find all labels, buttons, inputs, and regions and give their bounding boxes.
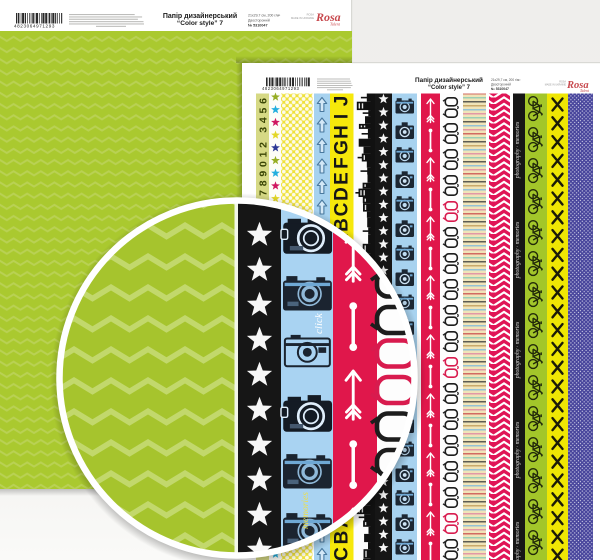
svg-text:D: D bbox=[332, 187, 353, 201]
svg-text:F: F bbox=[332, 157, 353, 169]
svg-text:MADE IN UKRAINE: MADE IN UKRAINE bbox=[291, 16, 314, 20]
svg-text:E: E bbox=[332, 172, 353, 185]
svg-text:Двосторонній: Двосторонній bbox=[491, 83, 511, 87]
svg-text:photography · memories: photography · memories bbox=[515, 321, 521, 379]
svg-text:9: 9 bbox=[257, 171, 269, 177]
svg-text:4823064971293: 4823064971293 bbox=[14, 24, 55, 29]
svg-text:MADE IN UKRAINE: MADE IN UKRAINE bbox=[545, 84, 567, 87]
svg-text:8: 8 bbox=[257, 180, 269, 186]
svg-text:5: 5 bbox=[257, 108, 269, 114]
svg-text:J: J bbox=[332, 96, 353, 107]
svg-text:№ 5310047: № 5310047 bbox=[248, 23, 268, 27]
svg-text:I: I bbox=[332, 114, 353, 119]
svg-text:memories: memories bbox=[301, 492, 311, 529]
svg-text:0: 0 bbox=[257, 161, 269, 167]
svg-text:G: G bbox=[332, 140, 353, 155]
svg-text:click: click bbox=[313, 312, 325, 334]
svg-text:“Color style” 7: “Color style” 7 bbox=[177, 20, 224, 27]
svg-text:C: C bbox=[332, 202, 353, 216]
svg-text:№ 5310047: № 5310047 bbox=[491, 87, 509, 91]
svg-text:2: 2 bbox=[257, 142, 269, 148]
svg-text:C: C bbox=[332, 547, 353, 560]
svg-text:Папір дизайнерський: Папір дизайнерський bbox=[163, 12, 237, 20]
svg-text:21х29,7 см, 200 г/м²: 21х29,7 см, 200 г/м² bbox=[491, 78, 520, 82]
svg-text:21х29,7 см, 200 г/м²: 21х29,7 см, 200 г/м² bbox=[248, 14, 281, 18]
svg-text:4: 4 bbox=[257, 117, 269, 123]
svg-text:photography · memories: photography · memories bbox=[515, 221, 521, 279]
svg-text:1: 1 bbox=[257, 151, 269, 157]
svg-text:6: 6 bbox=[257, 98, 269, 104]
svg-text:H: H bbox=[332, 125, 353, 139]
svg-text:ROSA: ROSA bbox=[307, 13, 315, 17]
svg-text:3: 3 bbox=[257, 127, 269, 133]
svg-text:4823064971293: 4823064971293 bbox=[262, 86, 300, 91]
svg-text:photography · memories: photography · memories bbox=[515, 521, 521, 560]
svg-text:photography · memories: photography · memories bbox=[515, 121, 521, 179]
svg-text:Talent: Talent bbox=[580, 89, 590, 93]
svg-text:“Color style” 7: “Color style” 7 bbox=[428, 85, 471, 91]
svg-text:Двосторонній: Двосторонній bbox=[248, 18, 270, 22]
svg-text:Talent: Talent bbox=[330, 22, 341, 27]
svg-text:Папір дизайнерський: Папір дизайнерський bbox=[415, 76, 483, 84]
svg-text:photography · memories: photography · memories bbox=[515, 421, 521, 479]
